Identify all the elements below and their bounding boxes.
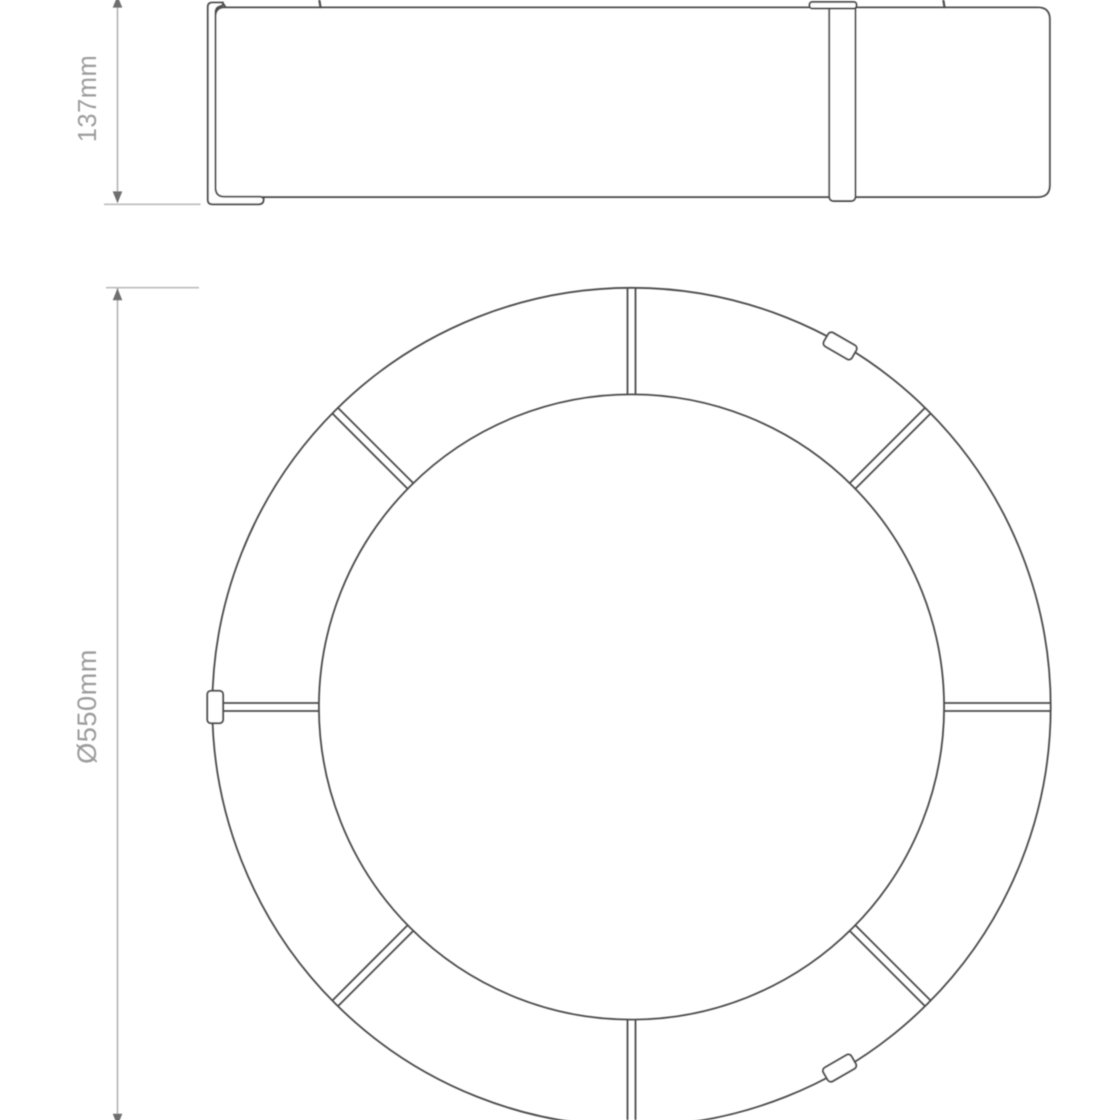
svg-text:Ø550mm: Ø550mm <box>71 649 102 764</box>
svg-text:137mm: 137mm <box>74 55 102 143</box>
